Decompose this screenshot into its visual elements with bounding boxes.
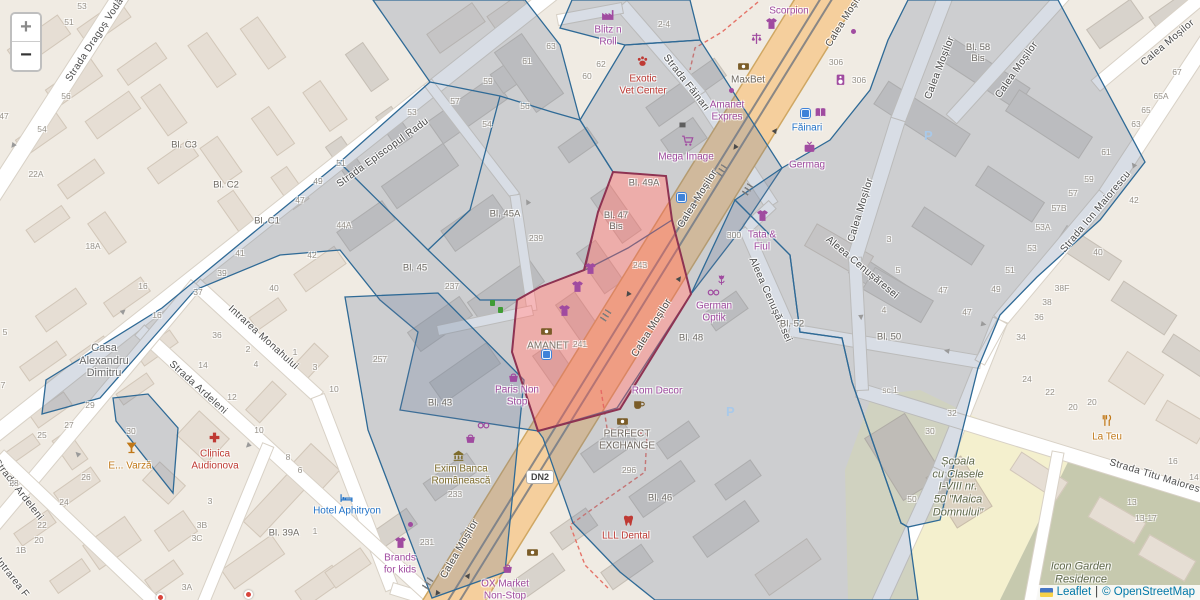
house-number: 44A xyxy=(336,221,351,231)
e-varza-icon xyxy=(125,441,138,454)
house-number: 306 xyxy=(829,58,843,68)
house-number: 37 xyxy=(193,288,202,298)
house-number: 65A xyxy=(1153,92,1168,102)
tram-crossing-icon xyxy=(716,164,728,177)
building xyxy=(293,246,347,293)
poi-dot-icon xyxy=(851,29,856,34)
house-number: 60 xyxy=(582,72,591,82)
building xyxy=(87,211,127,255)
building xyxy=(45,58,103,108)
house-number: 47 xyxy=(938,286,947,296)
building xyxy=(1162,334,1200,383)
house-number: 59 xyxy=(1084,175,1093,185)
road-street xyxy=(136,325,453,600)
house-number: 6 xyxy=(298,466,303,476)
road-street xyxy=(848,118,904,260)
paris-non-stop-label: Paris Non Stop xyxy=(495,385,539,408)
house-number: 3 xyxy=(208,497,213,507)
house-number: 22 xyxy=(37,521,46,531)
greenery-icon xyxy=(498,307,503,313)
house-number: 22A xyxy=(28,170,43,180)
building xyxy=(147,139,199,184)
building xyxy=(15,111,67,156)
barrier-dashed-line xyxy=(570,390,647,590)
house-number: 3A xyxy=(182,583,192,593)
house-number: 1 xyxy=(313,527,318,537)
building xyxy=(140,83,187,136)
street-name-label: Aleea Cenușăresei xyxy=(746,256,794,344)
house-number: 67 xyxy=(1172,68,1181,78)
oneway-arrow-icon: ▶ xyxy=(730,143,739,151)
house-number: 25 xyxy=(37,431,46,441)
building xyxy=(590,184,642,244)
maxbet-icon xyxy=(737,60,750,73)
house-number: 40 xyxy=(269,284,278,294)
house-number: 13 xyxy=(1127,498,1136,508)
building xyxy=(51,430,88,471)
parcel-polygon[interactable] xyxy=(580,40,782,294)
road-street xyxy=(0,451,169,600)
building xyxy=(873,81,970,158)
building xyxy=(240,16,287,70)
selected-parcel-polygon[interactable] xyxy=(512,172,691,431)
place-name-label: Casa Alexandru Dimitru xyxy=(79,342,129,380)
house-number: 61 xyxy=(1101,148,1110,158)
road-street xyxy=(0,280,201,534)
parcel-polygon[interactable] xyxy=(560,0,700,45)
building xyxy=(25,205,70,243)
street-name-label: Strada Ardeleni xyxy=(0,457,45,523)
amanet-icon xyxy=(540,325,553,338)
building xyxy=(1088,496,1147,544)
house-number: 56 xyxy=(520,102,529,112)
building xyxy=(336,200,396,252)
exim-banca-label: Exim Banca Românească xyxy=(432,464,491,487)
attribution-separator: | xyxy=(1095,586,1098,598)
house-number: 1B xyxy=(16,546,26,556)
la-teu-icon xyxy=(1100,414,1113,427)
perfect-exchange-label: PERFECT EXCHANGE xyxy=(599,429,655,452)
building xyxy=(176,410,230,464)
oneway-arrow-icon: ▶ xyxy=(523,197,532,205)
building xyxy=(576,240,624,295)
street-name-label: Calea Moșilor xyxy=(676,168,721,230)
building xyxy=(460,503,518,554)
house-number: 32 xyxy=(947,409,956,419)
building xyxy=(85,91,142,140)
zoom-control: + − xyxy=(10,12,42,72)
block-label: Bl. C3 xyxy=(171,141,197,152)
house-number: 10 xyxy=(254,426,263,436)
parcel-boundary-line xyxy=(585,220,672,270)
house-number: 26 xyxy=(81,473,90,483)
marker-pin-icon xyxy=(244,590,253,599)
block-label: Bl. 49A xyxy=(629,179,660,190)
house-number: 3 xyxy=(887,235,892,245)
building xyxy=(35,287,87,332)
building xyxy=(490,46,545,94)
oneway-arrow-icon: ▶ xyxy=(623,290,632,298)
building xyxy=(656,420,700,459)
oneway-arrow-icon: ▶ xyxy=(943,347,950,355)
building xyxy=(221,534,286,589)
building xyxy=(249,297,288,331)
greenery-icon xyxy=(490,300,495,306)
building xyxy=(57,158,105,199)
road-street xyxy=(0,0,567,448)
house-number: 16 xyxy=(138,282,147,292)
building xyxy=(3,433,41,465)
blitz-n-roll-label: Blitz n Roll xyxy=(594,25,621,48)
tram-track xyxy=(445,0,843,600)
house-number: 53 xyxy=(1027,244,1036,254)
house-number: 34 xyxy=(1016,333,1025,343)
house-number: 30 xyxy=(126,427,135,437)
clinica-audionova-label: Clinica Audionova xyxy=(191,449,238,472)
zoom-in-button[interactable]: + xyxy=(12,14,40,42)
labels-layer: Strada Dragoș VodăStrada Episcopul RaduI… xyxy=(0,0,1200,600)
la-teu-label: La Teu xyxy=(1092,431,1122,443)
mega-image-icon xyxy=(681,134,694,147)
street-name-label: Strada Titu Maiorescu xyxy=(1108,457,1200,499)
speaker-icon xyxy=(834,73,847,86)
building xyxy=(103,276,151,317)
house-number: 51 xyxy=(1005,266,1014,276)
road-street xyxy=(437,306,533,335)
road-street xyxy=(557,3,623,25)
poi-dot-icon xyxy=(729,88,734,93)
leaflet-link[interactable]: Leaflet xyxy=(1057,586,1092,598)
building xyxy=(628,460,695,518)
tshirt-icon xyxy=(571,280,584,293)
house-number: 241 xyxy=(573,340,587,350)
oneway-arrow-icon: ▶ xyxy=(1129,160,1138,169)
house-number: 53A xyxy=(1035,223,1050,233)
school-grounds-area xyxy=(845,390,1068,600)
block-label: Bl. 46 xyxy=(648,494,672,505)
tata-fiul-icon xyxy=(756,209,769,222)
perfect-exchange-icon xyxy=(616,415,629,428)
building xyxy=(53,466,101,507)
parcel-overlay xyxy=(0,0,1200,600)
rom-decor-icon xyxy=(632,398,645,411)
building xyxy=(372,508,418,548)
exim-banca-icon xyxy=(452,449,465,462)
road-street xyxy=(856,383,1200,504)
oneway-arrow-icon: ▶ xyxy=(675,274,684,282)
building xyxy=(423,453,480,502)
attribution-bar: Leaflet | © OpenStreetMap xyxy=(1035,585,1200,600)
building xyxy=(600,544,654,591)
building xyxy=(660,117,708,161)
house-number: 42 xyxy=(307,251,316,261)
house-number: 3B xyxy=(197,521,207,531)
building xyxy=(302,80,348,132)
house-number: 10 xyxy=(329,385,338,395)
building xyxy=(82,516,142,570)
building xyxy=(135,329,179,366)
building xyxy=(117,42,168,86)
house-number: 27 xyxy=(64,421,73,431)
german-optik-icon xyxy=(707,286,720,299)
openstreetmap-link[interactable]: © OpenStreetMap xyxy=(1102,586,1195,598)
parcel-polygon[interactable] xyxy=(538,200,918,600)
block-label: Bl. C2 xyxy=(213,181,239,192)
building xyxy=(703,291,748,332)
street-name-label: Calea Moșilor xyxy=(824,0,869,49)
building xyxy=(975,165,1045,222)
map-canvas[interactable]: ▶▶▶▶▶▶▶▶▶▶▶▶▶▶▶PP Strada Dragoș VodăStra… xyxy=(0,0,1200,600)
oneway-arrow-icon: ▶ xyxy=(771,126,780,134)
block-label: Bl. 52 xyxy=(780,320,804,331)
building xyxy=(1010,452,1069,501)
money-icon xyxy=(526,546,539,559)
house-number: 29 xyxy=(85,401,94,411)
building xyxy=(427,76,509,145)
building xyxy=(19,340,67,381)
oneway-arrow-icon: ▶ xyxy=(119,307,128,316)
building xyxy=(1148,0,1197,33)
building xyxy=(862,267,934,324)
house-number: 42 xyxy=(1129,196,1138,206)
block-label: Bl. 45A xyxy=(490,210,521,221)
building xyxy=(864,413,944,501)
house-number: 16 xyxy=(152,311,161,321)
germag-icon xyxy=(803,141,816,154)
street-name-label: Strada Dragoș Vodă xyxy=(64,0,127,84)
oneway-arrow-icon: ▶ xyxy=(243,441,252,450)
house-number: 41 xyxy=(235,249,244,259)
poi-dot-icon xyxy=(408,522,413,527)
ukraine-flag-icon xyxy=(1040,588,1053,597)
street-name-label: Strada Ardeleni xyxy=(167,359,230,417)
house-number: 49 xyxy=(313,177,322,187)
house-number: 16 xyxy=(1168,457,1177,467)
house-number: 2 xyxy=(246,345,251,355)
amanet-expres-label: Amanet Expres xyxy=(710,100,744,123)
house-number: 47 xyxy=(0,112,9,122)
building xyxy=(144,559,184,594)
street-name-label: Strada Făinari xyxy=(660,53,711,114)
amanet-label: AMANET xyxy=(527,340,569,352)
house-number: 300 xyxy=(727,231,741,241)
tshirt-icon xyxy=(558,304,571,317)
oneway-arrow-icon: ▶ xyxy=(857,315,864,321)
road-street xyxy=(994,190,1110,325)
house-number: 49 xyxy=(991,285,1000,295)
german-optik-label: German Optik xyxy=(696,301,732,324)
block-label: Bl. 45 xyxy=(403,264,427,275)
parking-icon: P xyxy=(924,128,933,143)
street-name-label: Strada Ion Maiorescu xyxy=(1058,169,1133,255)
street-name-label: Intrarea Monahului xyxy=(225,303,300,372)
street-name-label: Calea Moșilor xyxy=(846,177,876,244)
building xyxy=(440,194,507,252)
building xyxy=(754,538,821,596)
zoom-out-button[interactable]: − xyxy=(12,42,40,70)
road-street xyxy=(1023,451,1064,600)
scorpion-icon xyxy=(765,17,778,30)
house-number: 59 xyxy=(483,77,492,87)
street-name-label: Calea Moșilor xyxy=(923,35,958,101)
house-number: 4 xyxy=(882,306,887,316)
house-number: 54 xyxy=(37,125,46,135)
house-number: 20 xyxy=(1087,398,1096,408)
house-number: 38F xyxy=(1055,284,1070,294)
tram-track xyxy=(437,0,835,600)
parking-icon: P xyxy=(726,404,735,419)
road-street xyxy=(947,0,1073,122)
building xyxy=(29,391,73,428)
building xyxy=(714,459,762,501)
house-number: 39 xyxy=(217,269,226,279)
parcel-polygon[interactable] xyxy=(113,394,178,493)
building xyxy=(645,81,696,127)
building xyxy=(509,553,566,600)
lll-dental-label: LLL Dental xyxy=(602,530,650,542)
building xyxy=(154,510,198,552)
hotel-aphitryon-icon xyxy=(340,491,353,504)
house-number: 257 xyxy=(373,355,387,365)
brands-for-kids-label: Brands for kids xyxy=(384,553,416,576)
house-number: 40 xyxy=(1093,248,1102,258)
house-number: 12 xyxy=(227,393,236,403)
house-number: 8 xyxy=(286,453,291,463)
poi-icons-layer: ▶▶▶▶▶▶▶▶▶▶▶▶▶▶▶PP xyxy=(0,0,1200,600)
amanet-expres-icon xyxy=(750,32,763,45)
parcel-polygon[interactable] xyxy=(42,0,613,431)
house-number: 24 xyxy=(1022,375,1031,385)
road-street xyxy=(789,324,981,368)
transit-stop-icon xyxy=(801,109,810,118)
house-number: 51 xyxy=(64,18,73,28)
parcel-boundary-line xyxy=(430,82,580,120)
transit-stop-icon xyxy=(542,350,551,359)
road-street xyxy=(740,226,796,333)
block-label: Bl. C1 xyxy=(254,217,280,228)
glasses-icon xyxy=(477,419,490,432)
road-street xyxy=(849,258,868,391)
street-name-label: Intrarea F xyxy=(0,556,31,600)
scorpion-label: Scorpion xyxy=(769,5,808,17)
parcel-boundary-line xyxy=(337,160,517,300)
garage-icon xyxy=(676,116,689,129)
paris-non-stop-icon xyxy=(507,371,520,384)
street-name-label: Strada Episcopul Radu xyxy=(335,116,431,190)
building xyxy=(407,296,473,352)
road-street xyxy=(1092,0,1200,90)
tata-fiul-label: Tata & Fiul xyxy=(748,230,776,253)
book-icon xyxy=(814,106,827,119)
road-street xyxy=(193,443,273,600)
house-number: 296 xyxy=(622,466,636,476)
building xyxy=(494,33,564,113)
building xyxy=(1005,89,1093,159)
house-number: 38 xyxy=(1042,298,1051,308)
ox-market-label: OX Market Non-Stop xyxy=(481,579,529,600)
house-number: 306 xyxy=(852,76,866,86)
building xyxy=(580,423,638,474)
house-number: 56 xyxy=(61,92,70,102)
building xyxy=(270,166,309,210)
house-number: 23 xyxy=(9,479,18,489)
building xyxy=(69,335,113,372)
house-number: 63 xyxy=(546,42,555,52)
house-number: 233 xyxy=(448,490,462,500)
tram-crossing-icon xyxy=(600,309,612,322)
building xyxy=(486,0,531,34)
house-number: 53 xyxy=(77,2,86,12)
building xyxy=(1155,400,1200,445)
mega-image-label: Mega Image xyxy=(658,151,714,163)
building xyxy=(325,136,363,179)
block-label: Bl. 43 xyxy=(428,399,452,410)
building xyxy=(692,500,759,558)
building xyxy=(532,341,582,397)
building xyxy=(324,547,372,589)
parcel-polygon[interactable] xyxy=(735,0,1145,527)
house-number: 7 xyxy=(1,381,6,391)
house-number: sc 1 xyxy=(882,386,898,396)
building xyxy=(550,507,599,550)
road-street xyxy=(891,0,954,123)
building xyxy=(288,443,340,495)
brands-for-kids-icon xyxy=(394,536,407,549)
maxbet-label: MaxBet xyxy=(731,74,765,86)
house-number: 18A xyxy=(85,242,100,252)
building xyxy=(345,42,389,92)
building xyxy=(555,291,601,342)
building xyxy=(142,461,186,505)
building xyxy=(939,38,1030,110)
exotic-vet-center-label: Exotic Vet Center xyxy=(619,74,666,97)
transit-stop-icon xyxy=(677,193,686,202)
house-number: 14 xyxy=(198,361,207,371)
germag-label: Germag xyxy=(789,159,825,171)
house-number: 53 xyxy=(407,108,416,118)
road-street xyxy=(312,394,398,591)
building xyxy=(245,381,287,424)
road-street xyxy=(868,467,947,600)
house-number: 24 xyxy=(59,498,68,508)
blitz-n-roll-icon xyxy=(601,8,614,21)
road-shield-dn2: DN2 xyxy=(526,470,554,484)
building xyxy=(429,342,501,403)
house-number: 243 xyxy=(633,261,647,271)
building xyxy=(375,106,413,149)
building xyxy=(381,143,459,210)
buildings-layer xyxy=(0,0,1200,600)
road-street xyxy=(390,583,471,600)
flower-icon xyxy=(715,273,728,286)
parcel-boundary-line xyxy=(428,96,500,250)
house-number: 50 xyxy=(907,495,916,505)
parcel-polygon[interactable] xyxy=(345,293,524,598)
building xyxy=(1054,225,1122,281)
oneway-arrow-icon: ▶ xyxy=(432,589,441,597)
block-label: Bl. 47 Bis xyxy=(604,211,628,233)
building xyxy=(251,106,295,156)
road-street xyxy=(933,317,1007,473)
house-number: 62 xyxy=(596,60,605,70)
house-number: 57 xyxy=(450,97,459,107)
basket-icon xyxy=(464,432,477,445)
building xyxy=(426,2,486,54)
lll-dental-icon xyxy=(622,514,635,527)
building xyxy=(1086,0,1144,49)
e-varza-label: E... Varză xyxy=(108,460,151,472)
street-name-label: Calea Moșilor xyxy=(993,40,1040,101)
